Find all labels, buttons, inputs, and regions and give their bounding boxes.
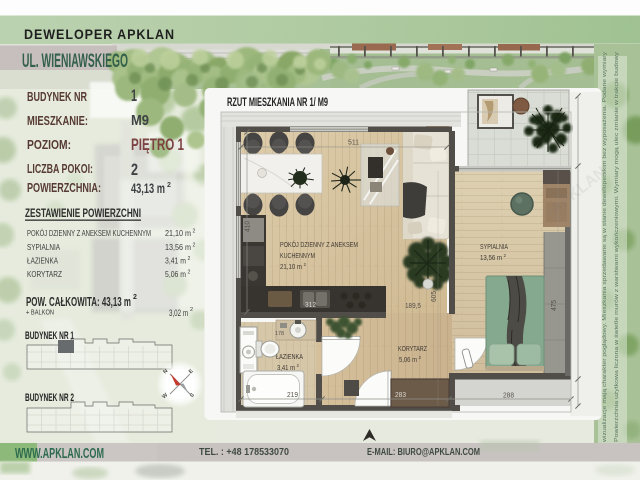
svg-text:Powierzchnia użytkowa liczona: Powierzchnia użytkowa liczona w świetle … bbox=[614, 52, 620, 442]
svg-text:475: 475 bbox=[551, 300, 558, 311]
svg-text:511: 511 bbox=[348, 140, 359, 147]
svg-text:ŁAZIENKA: ŁAZIENKA bbox=[27, 256, 58, 266]
svg-text:SYPIALNIA: SYPIALNIA bbox=[480, 242, 508, 251]
svg-text:WWW.APKLAN.COM: WWW.APKLAN.COM bbox=[15, 446, 104, 462]
svg-text:2: 2 bbox=[131, 160, 138, 179]
svg-text:312: 312 bbox=[305, 302, 316, 309]
svg-text:2: 2 bbox=[193, 243, 196, 249]
svg-text:POKÓJ DZIENNY Z ANEKSEM KUCHEN: POKÓJ DZIENNY Z ANEKSEM KUCHENNYM bbox=[27, 228, 151, 238]
svg-text:605: 605 bbox=[431, 291, 438, 302]
svg-text:2: 2 bbox=[193, 229, 196, 235]
svg-text:wizualizacje mają charakter po: wizualizacje mają charakter poglądowy. M… bbox=[602, 52, 608, 443]
svg-text:13,56 m: 13,56 m bbox=[480, 253, 502, 262]
svg-text:2: 2 bbox=[188, 270, 191, 276]
svg-text:PIĘTRO 1: PIĘTRO 1 bbox=[131, 135, 184, 154]
svg-text:5,06 m: 5,06 m bbox=[399, 355, 417, 364]
svg-text:TEL. : +48 178533070: TEL. : +48 178533070 bbox=[199, 447, 289, 458]
svg-text:BUDYNEK NR: BUDYNEK NR bbox=[27, 89, 87, 104]
svg-text:43,13 m: 43,13 m bbox=[131, 181, 165, 196]
svg-text:LICZBA POKOI:: LICZBA POKOI: bbox=[27, 161, 93, 176]
svg-text:UL. WIENIAWSKIEGO: UL. WIENIAWSKIEGO bbox=[22, 51, 128, 72]
svg-text:POKÓJ DZIENNY Z ANEKSEM: POKÓJ DZIENNY Z ANEKSEM bbox=[280, 240, 358, 249]
svg-text:DEWELOPER APKLAN: DEWELOPER APKLAN bbox=[24, 27, 175, 42]
svg-text:MIESZKANIE:: MIESZKANIE: bbox=[27, 113, 88, 128]
svg-text:2: 2 bbox=[188, 256, 191, 262]
svg-text:178: 178 bbox=[275, 331, 284, 337]
svg-text:13,56 m: 13,56 m bbox=[165, 242, 191, 252]
svg-text:E-MAIL: BIURO@APKLAN.COM: E-MAIL: BIURO@APKLAN.COM bbox=[367, 447, 480, 458]
svg-text:288: 288 bbox=[503, 393, 514, 400]
svg-text:POZIOM:: POZIOM: bbox=[27, 137, 71, 152]
svg-text:+ BALKON: + BALKON bbox=[26, 308, 54, 317]
svg-text:ŁAZIENKA: ŁAZIENKA bbox=[276, 352, 303, 361]
svg-text:KORYTARZ: KORYTARZ bbox=[398, 344, 427, 353]
svg-text:2: 2 bbox=[133, 294, 137, 301]
svg-text:KORYTARZ: KORYTARZ bbox=[27, 269, 62, 279]
svg-text:219: 219 bbox=[287, 392, 298, 399]
svg-text:2: 2 bbox=[190, 307, 193, 313]
svg-text:POWIERZCHNIA:: POWIERZCHNIA: bbox=[27, 180, 101, 195]
svg-text:3,02 m: 3,02 m bbox=[169, 308, 188, 319]
svg-text:283: 283 bbox=[395, 392, 406, 399]
svg-text:BUDYNEK NR 2: BUDYNEK NR 2 bbox=[25, 392, 74, 404]
svg-text:2: 2 bbox=[167, 182, 171, 189]
svg-text:3,41 m: 3,41 m bbox=[165, 256, 186, 266]
svg-text:ZESTAWIENIE POWIERZCHNI: ZESTAWIENIE POWIERZCHNI bbox=[25, 208, 141, 220]
svg-text:1: 1 bbox=[131, 86, 137, 105]
svg-text:5,06 m: 5,06 m bbox=[165, 269, 186, 279]
svg-text:189,5: 189,5 bbox=[405, 303, 421, 310]
svg-text:21,10 m: 21,10 m bbox=[165, 228, 191, 238]
svg-text:M9: M9 bbox=[131, 112, 149, 129]
svg-text:KUCHENNYM: KUCHENNYM bbox=[280, 251, 315, 260]
svg-text:3,41 m: 3,41 m bbox=[277, 363, 295, 372]
svg-text:SYPIALNIA: SYPIALNIA bbox=[27, 242, 60, 252]
svg-text:RZUT MIESZKANIA NR 1/ M9: RZUT MIESZKANIA NR 1/ M9 bbox=[227, 97, 328, 109]
svg-text:21,10 m: 21,10 m bbox=[280, 262, 302, 271]
svg-text:410: 410 bbox=[245, 221, 252, 232]
